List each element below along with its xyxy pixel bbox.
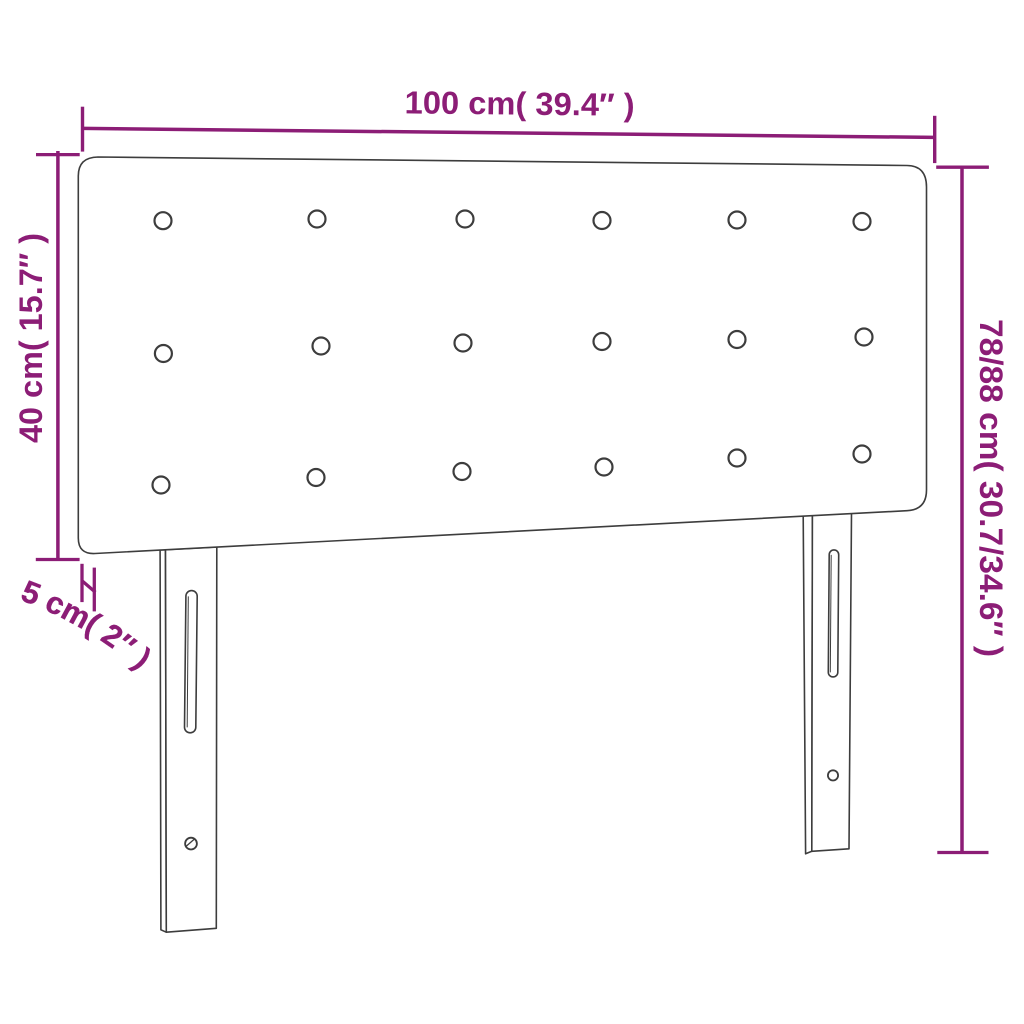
svg-text:100 cm( 39.4″ ): 100 cm( 39.4″ ) (404, 84, 634, 122)
svg-text:78/88 cm( 30.7/34.6″ ): 78/88 cm( 30.7/34.6″ ) (973, 319, 1009, 657)
svg-text:40 cm( 15.7″ ): 40 cm( 15.7″ ) (13, 233, 49, 443)
